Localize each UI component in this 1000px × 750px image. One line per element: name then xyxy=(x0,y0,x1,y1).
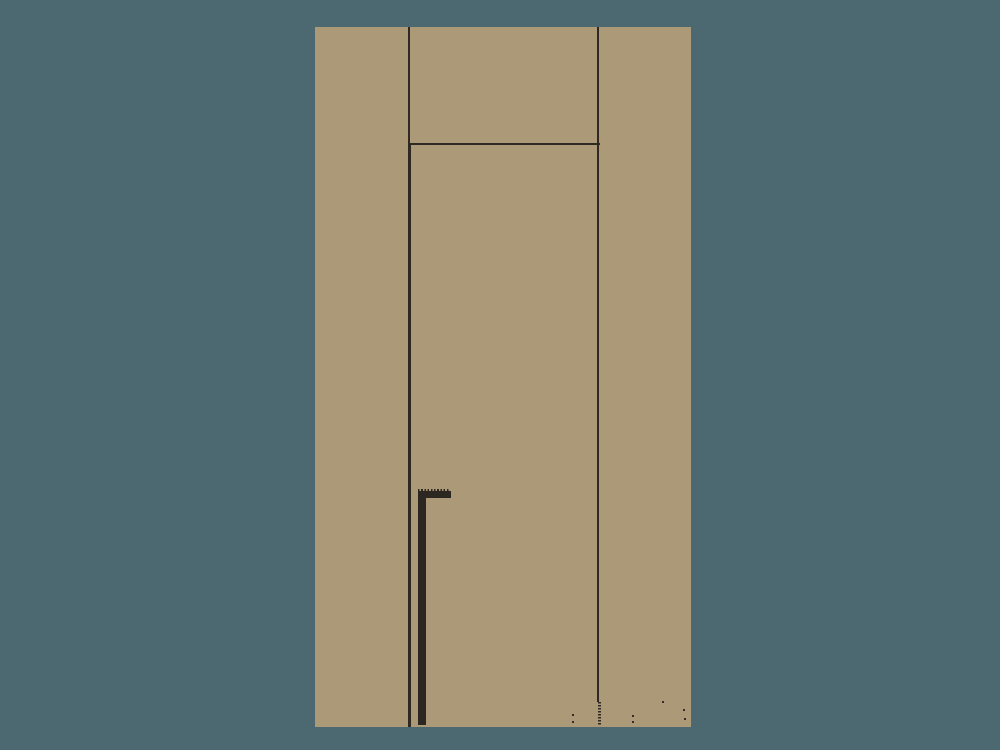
drawing-canvas[interactable] xyxy=(0,0,1000,750)
jamb-line-right xyxy=(597,27,599,143)
ink-speck xyxy=(684,718,686,720)
door-outline-right-edge xyxy=(597,143,600,702)
door-outline-left-edge xyxy=(408,143,411,728)
door-right-dashed-tail xyxy=(598,702,600,726)
l-bar-vertical xyxy=(418,498,426,725)
ink-speck xyxy=(632,715,634,717)
ink-speck xyxy=(572,714,574,716)
ink-speck xyxy=(632,721,634,723)
transom-line xyxy=(408,143,600,146)
ink-speck xyxy=(572,721,574,723)
ink-speck xyxy=(662,701,664,703)
ink-speck xyxy=(683,709,685,711)
jamb-line-left xyxy=(408,27,410,143)
drawing-sheet xyxy=(315,27,691,727)
